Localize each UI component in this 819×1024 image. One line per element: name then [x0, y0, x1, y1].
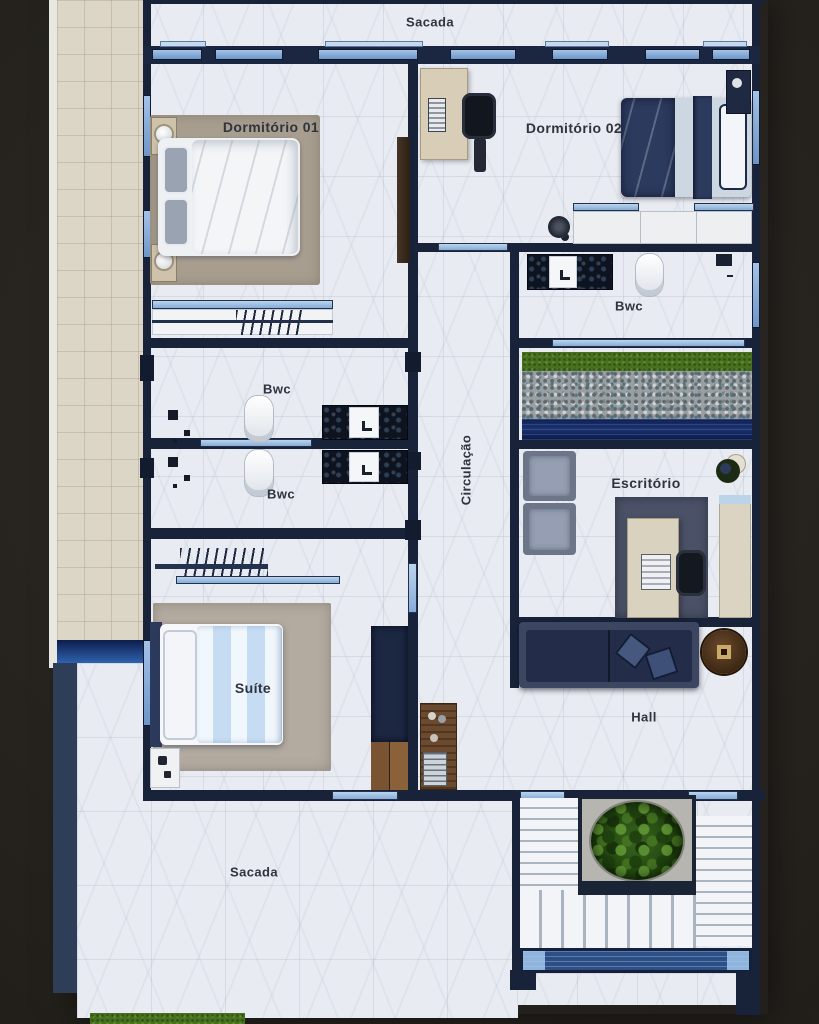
suite-pillows	[163, 630, 197, 740]
dorm01-tv-panel	[397, 137, 410, 263]
room-label-hall: Hall	[631, 710, 656, 725]
suite-wardrobe	[371, 626, 408, 742]
window-right-dorm02	[752, 90, 760, 165]
door-frame-bwc-upper	[405, 352, 421, 372]
room-label-sacada-bottom: Sacada	[230, 865, 278, 880]
escritorio-cabinet	[719, 495, 751, 618]
room-label-sacada-top: Sacada	[406, 15, 454, 30]
bwc-upper-toilet	[245, 396, 273, 442]
stairs-left-flight	[520, 798, 578, 890]
window-sill	[160, 41, 206, 47]
wall-garden-bottom	[510, 440, 760, 449]
window-glass	[450, 49, 516, 60]
suite-wood-drawers	[371, 742, 408, 790]
window-sill	[545, 41, 609, 47]
threshold-bwc-right	[552, 339, 745, 347]
room-label-bwc-upper: Bwc	[263, 382, 291, 397]
stairs-bottom-flight	[520, 890, 696, 948]
wall-mid-left	[143, 338, 415, 348]
floor-plan: Sacada Dormitório 01 Dormitório 02 Bwc B…	[0, 0, 819, 1024]
escritorio-cabinet-top	[719, 495, 751, 504]
dorm02-wardrobe-body	[573, 211, 752, 244]
bwc-upper-sink	[349, 407, 379, 438]
dorm02-fan	[548, 216, 570, 238]
escritorio-armchair-a-cushion	[529, 456, 570, 496]
suite-nightstand	[150, 748, 180, 788]
dorm02-blanket-band	[693, 96, 712, 199]
lawn-patch	[90, 1013, 245, 1024]
wall-bwc-bottom	[143, 528, 415, 539]
room-label-dormitorio-01: Dormitório 01	[223, 119, 319, 135]
dorm01-closet-bar	[152, 320, 333, 323]
terrace-side-wall	[53, 663, 79, 993]
stairs-planter-curb	[582, 881, 692, 891]
stair-landing	[517, 973, 736, 1005]
suite-closet-bar	[155, 564, 268, 569]
escritorio-laptop	[641, 554, 671, 590]
window-sill	[325, 41, 423, 47]
hall-side-table-decor	[717, 645, 731, 659]
walkway-edge	[49, 0, 57, 668]
garden-pebble-bed	[522, 371, 752, 419]
threshold-sacada-door-a	[332, 791, 398, 800]
escritorio-armchair-b-cushion	[529, 509, 570, 550]
dorm01-duvet	[192, 140, 298, 254]
stairs-glass-railing	[520, 948, 752, 973]
dorm02-nightstand	[726, 70, 751, 114]
pilaster-left-2	[140, 458, 154, 478]
wardrobe-rail-b	[694, 203, 754, 211]
room-label-circulacao: Circulação	[459, 435, 474, 505]
suite-nightstand-decor	[158, 756, 167, 765]
wall-stub-bottom-left	[510, 970, 536, 990]
pilaster-left-1	[140, 355, 154, 381]
dorm02-laptop	[428, 98, 446, 132]
threshold-suite-door	[408, 563, 417, 613]
wall-stub-bottom-right	[736, 970, 760, 1015]
room-label-bwc-lower: Bwc	[267, 487, 295, 502]
window-sill	[703, 41, 747, 47]
side-walkway	[57, 0, 143, 643]
room-label-dormitorio-02: Dormitório 02	[526, 120, 622, 136]
window-glass	[645, 49, 700, 60]
bwc-upper-shower-head	[168, 410, 178, 420]
window-glass	[712, 49, 750, 60]
wall-corridor-right	[510, 243, 519, 688]
bwc-right-toilet	[636, 254, 663, 296]
suite-closet-rail	[176, 576, 340, 584]
dorm01-closet-rail	[152, 300, 333, 309]
window-glass	[552, 49, 608, 60]
bwc-lower-shower-head	[168, 457, 178, 467]
bwc-right-sink	[549, 256, 577, 288]
dorm02-nightstand-decor	[732, 78, 742, 88]
bwc-lower-sink	[349, 452, 379, 482]
stairs-right-flight	[696, 816, 752, 946]
escritorio-plant-leaves	[716, 459, 740, 483]
suite-hangers	[180, 548, 268, 578]
window-glass	[215, 49, 283, 60]
dorm01-pillow-a	[163, 146, 189, 194]
hall-console-tray	[423, 752, 447, 786]
dorm02-pillow	[719, 104, 747, 190]
stairs-bush	[591, 802, 683, 880]
garden-grass-band	[522, 352, 752, 371]
dorm02-office-chair	[462, 93, 496, 139]
garden-water-feature	[522, 419, 752, 440]
wall-top	[143, 0, 765, 4]
window-glass	[318, 49, 418, 60]
door-frame-suite	[405, 520, 421, 540]
wall-stairs-left	[512, 793, 520, 988]
dorm02-duvet	[621, 98, 675, 197]
window-glass	[152, 49, 202, 60]
dorm01-pillow-b	[163, 198, 189, 246]
hall-console-decor	[428, 712, 436, 720]
window-right-bwc	[752, 262, 760, 328]
wardrobe-rail-a	[573, 203, 639, 211]
room-label-bwc-right: Bwc	[615, 299, 643, 314]
room-label-suite: Suíte	[235, 680, 271, 696]
escritorio-office-chair	[676, 550, 706, 596]
threshold-desk-nook	[438, 243, 508, 251]
room-label-escritorio: Escritório	[611, 475, 680, 491]
dorm02-floor-item	[474, 138, 486, 172]
bwc-right-shower	[716, 254, 732, 266]
